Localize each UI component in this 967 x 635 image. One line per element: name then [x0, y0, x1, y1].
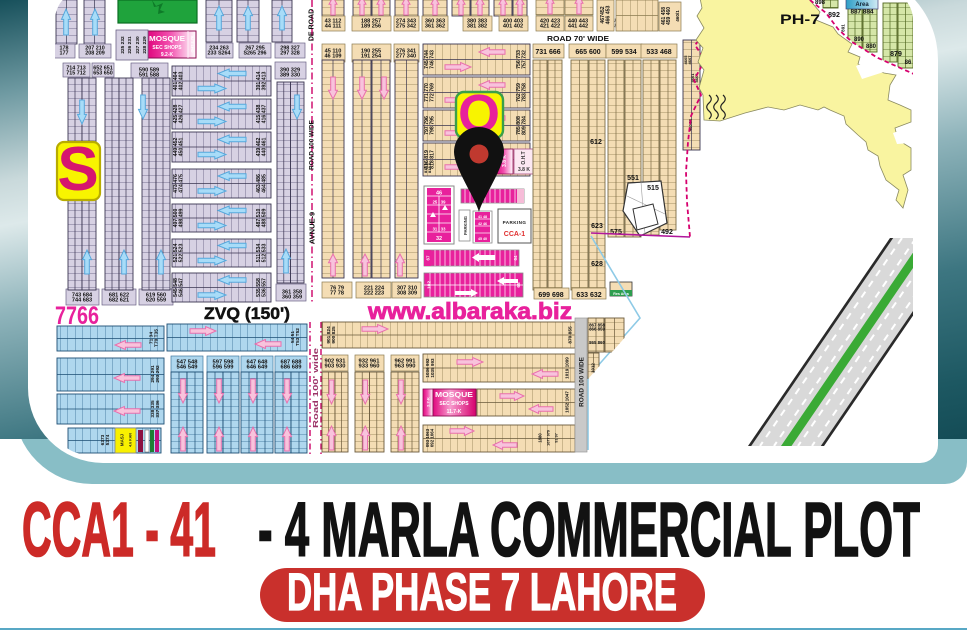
svg-text:ROAD 100 WIDE: ROAD 100 WIDE [308, 119, 315, 169]
svg-text:Area: Area [855, 2, 869, 8]
svg-text:890: 890 [854, 37, 865, 43]
svg-text:S: S [57, 135, 98, 204]
svg-text:DHA PHASE 7 LAHORE: DHA PHASE 7 LAHORE [287, 563, 677, 622]
svg-text:596 599: 596 599 [213, 365, 235, 371]
svg-text:887 884: 887 884 [850, 8, 874, 15]
svg-text:ROAD 100 WIDE: ROAD 100 WIDE [578, 356, 585, 406]
svg-text:222 223: 222 223 [364, 291, 384, 297]
svg-text:189 256: 189 256 [361, 24, 381, 30]
svg-text:361 362: 361 362 [425, 24, 445, 30]
svg-text:757 732: 757 732 [521, 50, 527, 69]
svg-text:1012: 1012 [591, 363, 596, 373]
svg-text:191 254: 191 254 [361, 54, 382, 60]
svg-text:275 342: 275 342 [396, 24, 416, 30]
svg-text:488 509: 488 509 [261, 209, 267, 228]
svg-text:466 453: 466 453 [605, 6, 611, 25]
svg-text:SEC SHOPS: SEC SHOPS [152, 45, 182, 51]
svg-text:41 48: 41 48 [478, 215, 487, 219]
svg-text:546 547: 546 547 [178, 278, 184, 297]
svg-text:381 382: 381 382 [467, 24, 487, 30]
svg-text:591 588: 591 588 [139, 73, 159, 79]
svg-text:11.7-K: 11.7-K [447, 409, 462, 415]
svg-text:86: 86 [905, 60, 912, 66]
svg-text:PARKING: PARKING [503, 220, 527, 225]
svg-text:5374: 5374 [105, 434, 111, 445]
svg-text:633 632: 633 632 [576, 292, 601, 299]
svg-text:SEC SHOPS: SEC SHOPS [439, 401, 469, 407]
svg-text:2.7-K: 2.7-K [425, 397, 430, 407]
svg-text:416 437: 416 437 [261, 105, 267, 124]
svg-text:900 825: 900 825 [331, 326, 337, 344]
svg-text:623: 623 [591, 223, 603, 230]
svg-text:MOSQUE: MOSQUE [435, 392, 473, 399]
svg-text:208 209: 208 209 [85, 50, 105, 56]
svg-text:450 451: 450 451 [178, 138, 184, 157]
svg-text:715 712: 715 712 [66, 70, 86, 76]
svg-text:CCA-1: CCA-1 [504, 231, 525, 238]
svg-text:426 427: 426 427 [178, 105, 184, 124]
svg-text:25 | 39: 25 | 39 [433, 200, 446, 205]
svg-text:746 743: 746 743 [429, 50, 435, 69]
svg-text:T53 T52: T53 T52 [295, 328, 301, 346]
svg-text:441 442: 441 442 [568, 24, 588, 30]
svg-text:879: 879 [890, 51, 902, 58]
svg-text:891: 891 [841, 24, 846, 32]
svg-text:227 230: 227 230 [135, 36, 141, 54]
svg-text:44 111: 44 111 [325, 24, 342, 30]
svg-text:963 990: 963 990 [395, 364, 416, 370]
svg-text:CCA1 - 41: CCA1 - 41 [22, 487, 216, 573]
svg-text:389 330: 389 330 [280, 73, 300, 79]
svg-text:783 758: 783 758 [521, 83, 527, 102]
svg-text:628: 628 [591, 261, 603, 268]
svg-text:880: 880 [866, 44, 877, 50]
svg-text:459 460: 459 460 [666, 7, 672, 25]
svg-text:31 | 33: 31 | 33 [433, 227, 446, 232]
svg-text:1880: 1880 [537, 433, 542, 443]
svg-text:177: 177 [60, 50, 69, 56]
svg-text:46: 46 [436, 191, 442, 197]
svg-text:3.8 K: 3.8 K [518, 167, 530, 173]
svg-text:ROAD 70' WIDE: ROAD 70' WIDE [547, 36, 609, 43]
svg-text:308 309: 308 309 [397, 291, 417, 297]
svg-text:421 422: 421 422 [540, 24, 560, 30]
svg-text:360 359: 360 359 [282, 295, 302, 301]
svg-text:MOSQUE: MOSQUE [149, 34, 185, 43]
svg-text:546 549: 546 549 [177, 365, 199, 371]
svg-text:4.6 KAN: 4.6 KAN [128, 433, 132, 447]
svg-text:www.albaraka.biz: www.albaraka.biz [367, 298, 572, 324]
svg-text:225 232: 225 232 [120, 36, 126, 54]
svg-text:277 340: 277 340 [396, 54, 416, 60]
svg-text:646 649: 646 649 [247, 365, 269, 371]
svg-text:460/1: 460/1 [675, 10, 680, 22]
svg-text:42 46: 42 46 [478, 222, 487, 226]
svg-text:798 795: 798 795 [429, 116, 435, 135]
svg-text:474 475: 474 475 [178, 174, 184, 193]
svg-text:512 533: 512 533 [261, 244, 267, 263]
svg-text:77 78: 77 78 [330, 291, 344, 297]
svg-text:731 666: 731 666 [535, 49, 560, 56]
svg-text:O.H.T: O.H.T [521, 151, 527, 164]
svg-text:665 600: 665 600 [575, 49, 600, 56]
svg-text:401 402: 401 402 [503, 24, 523, 30]
svg-text:91 97: 91 97 [554, 433, 558, 443]
svg-text:492: 492 [661, 229, 673, 236]
svg-text:686 689: 686 689 [281, 365, 303, 371]
svg-text:297 328: 297 328 [280, 50, 300, 56]
svg-text:228 229: 228 229 [142, 36, 148, 54]
svg-text:809 784: 809 784 [521, 116, 527, 135]
svg-text:653 650: 653 650 [93, 70, 113, 76]
svg-text:PH-7: PH-7 [780, 11, 820, 27]
svg-text:- 4 MARLA COMMERCIAL PLOT: - 4 MARLA COMMERCIAL PLOT [258, 487, 920, 573]
svg-text:092 1064: 092 1064 [430, 428, 435, 447]
svg-text:DE ROAD: DE ROAD [308, 9, 315, 41]
svg-text:46 109: 46 109 [324, 54, 341, 60]
svg-text:67: 67 [426, 255, 431, 261]
svg-text:933 960: 933 960 [359, 364, 380, 370]
svg-text:536 557: 536 557 [261, 278, 267, 297]
svg-text:1019 1099: 1019 1099 [565, 357, 570, 379]
svg-text:402 403: 402 403 [178, 72, 184, 91]
svg-text:612: 612 [590, 139, 602, 146]
svg-text:AVNUE-9: AVNUE-9 [308, 212, 317, 244]
svg-text:903 930: 903 930 [325, 364, 346, 370]
svg-text:533 468: 533 468 [646, 49, 671, 56]
svg-text:1077 979: 1077 979 [546, 430, 550, 446]
svg-text:Road 100' wide: Road 100' wide [313, 348, 320, 428]
svg-text:S265 296: S265 296 [243, 50, 266, 56]
svg-text:440 461: 440 461 [261, 138, 267, 157]
svg-text:866 859: 866 859 [589, 326, 605, 331]
svg-text:620 559: 620 559 [146, 298, 166, 304]
svg-text:337 336: 337 336 [155, 400, 161, 418]
svg-text:233 S264: 233 S264 [207, 50, 230, 56]
svg-text:293 292: 293 292 [155, 365, 161, 383]
svg-text:PARKING: PARKING [463, 216, 468, 235]
svg-text:599 534: 599 534 [611, 49, 636, 56]
svg-text:45 40: 45 40 [478, 237, 487, 241]
svg-text:772 769: 772 769 [429, 83, 435, 102]
svg-text:551: 551 [627, 175, 639, 182]
svg-text:392 413: 392 413 [261, 72, 267, 91]
svg-text:522 523: 522 523 [178, 244, 184, 263]
svg-text:818 8: 818 8 [427, 162, 432, 173]
svg-text:OHT 2.7K: OHT 2.7K [190, 35, 194, 52]
svg-text:498 499: 498 499 [178, 209, 184, 228]
svg-text:MASJ: MASJ [120, 433, 125, 446]
svg-text:464 485: 464 485 [261, 174, 267, 193]
svg-text:ZVQ (150'): ZVQ (150') [204, 304, 290, 323]
svg-text:64: 64 [513, 255, 518, 261]
svg-text:1052 1047: 1052 1047 [565, 391, 570, 413]
svg-text:865 860: 865 860 [589, 340, 605, 345]
svg-text:4607: 4607 [687, 55, 692, 65]
svg-text:515: 515 [647, 185, 659, 192]
svg-text:32: 32 [436, 236, 442, 242]
svg-text:682 621: 682 621 [109, 298, 129, 304]
svg-text:226 231: 226 231 [127, 36, 133, 54]
svg-text:1035 993: 1035 993 [430, 358, 435, 378]
svg-text:T70 T35: T70 T35 [154, 329, 160, 347]
svg-text:102: 102 [427, 281, 433, 289]
svg-text:9.2-K: 9.2-K [161, 52, 174, 58]
svg-text:870 855: 870 855 [568, 326, 574, 344]
